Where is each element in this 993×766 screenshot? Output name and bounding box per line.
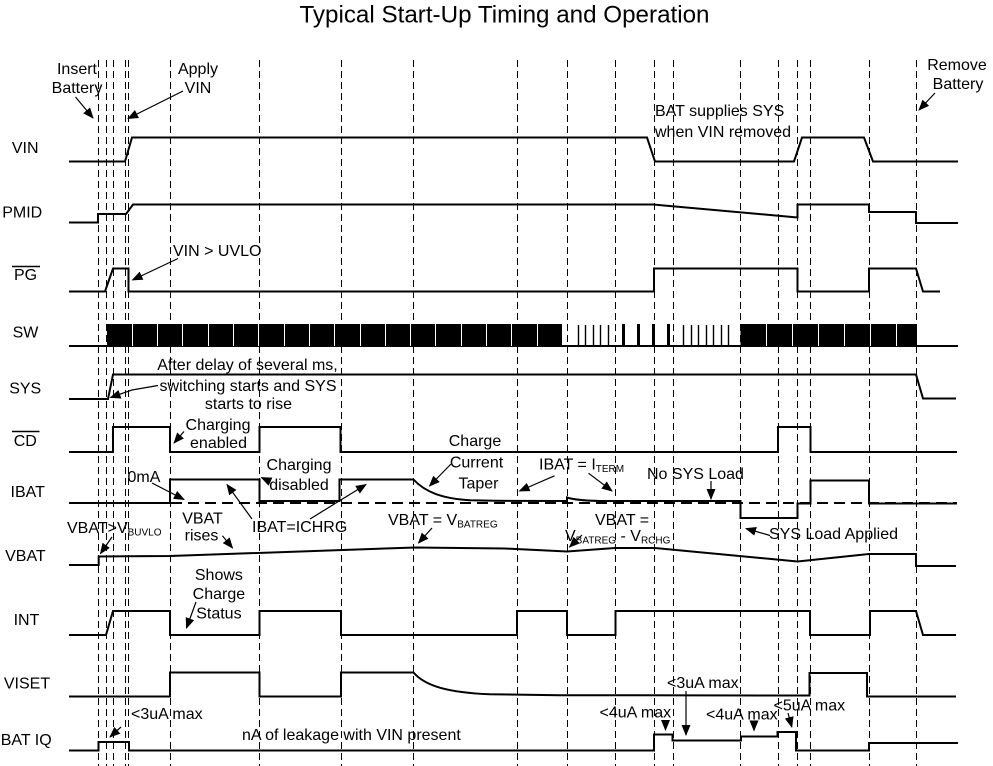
svg-text:Taper: Taper [458, 476, 499, 493]
svg-text:Battery: Battery [933, 76, 984, 93]
svg-text:Remove: Remove [927, 57, 987, 74]
svg-text:starts to rise: starts to rise [205, 396, 292, 413]
svg-text:disabled: disabled [269, 477, 329, 494]
svg-text:Insert: Insert [57, 61, 98, 78]
svg-text:PG: PG [14, 267, 37, 284]
svg-text:VIN > UVLO: VIN > UVLO [173, 243, 261, 260]
svg-text:<4uA max: <4uA max [706, 707, 778, 724]
svg-text:IBAT: IBAT [11, 484, 46, 501]
svg-text:Charge: Charge [449, 433, 502, 450]
svg-text:Apply: Apply [178, 61, 218, 78]
svg-text:INT: INT [14, 612, 40, 629]
svg-text:rises: rises [185, 527, 219, 544]
svg-text:Charging: Charging [186, 417, 251, 434]
svg-text:VBAT: VBAT [182, 510, 223, 527]
svg-text:No SYS Load: No SYS Load [647, 466, 744, 483]
svg-text:PMID: PMID [2, 205, 42, 222]
svg-text:VISET: VISET [4, 676, 50, 693]
svg-text:VIN: VIN [185, 80, 212, 97]
svg-text:After delay of several ms,: After delay of several ms, [157, 357, 338, 374]
svg-text:<4uA max: <4uA max [600, 705, 672, 722]
svg-text:SYS Load Applied: SYS Load Applied [769, 526, 898, 543]
svg-text:switching starts and SYS: switching starts and SYS [160, 378, 337, 395]
svg-text:IBAT=ICHRG: IBAT=ICHRG [252, 519, 347, 536]
svg-text:Battery: Battery [52, 80, 103, 97]
svg-text:<3uA max: <3uA max [131, 706, 203, 723]
svg-text:SW: SW [13, 325, 40, 342]
svg-text:Status: Status [196, 606, 241, 623]
svg-text:nA of leakage with VIN present: nA of leakage with VIN present [242, 727, 461, 744]
svg-text:VBAT =: VBAT = [595, 512, 649, 529]
svg-text:SYS: SYS [9, 381, 41, 398]
svg-text:when VIN removed: when VIN removed [654, 124, 791, 141]
svg-text:<5uA max: <5uA max [774, 698, 846, 715]
svg-text:BAT IQ: BAT IQ [1, 732, 52, 749]
svg-text:0mA: 0mA [128, 469, 161, 486]
svg-text:Typical Start-Up Timing and Op: Typical Start-Up Timing and Operation [299, 2, 709, 29]
svg-text:enabled: enabled [190, 435, 247, 452]
svg-text:Current: Current [450, 455, 504, 472]
svg-text:VIN: VIN [12, 140, 39, 157]
svg-text:VBAT: VBAT [5, 548, 46, 565]
svg-text:CD: CD [14, 433, 37, 450]
svg-text:BAT supplies SYS: BAT supplies SYS [655, 103, 784, 120]
svg-text:Charging: Charging [267, 457, 332, 474]
svg-text:Shows: Shows [195, 567, 243, 584]
svg-text:<3uA max: <3uA max [667, 675, 739, 692]
svg-text:Charge: Charge [193, 586, 246, 603]
